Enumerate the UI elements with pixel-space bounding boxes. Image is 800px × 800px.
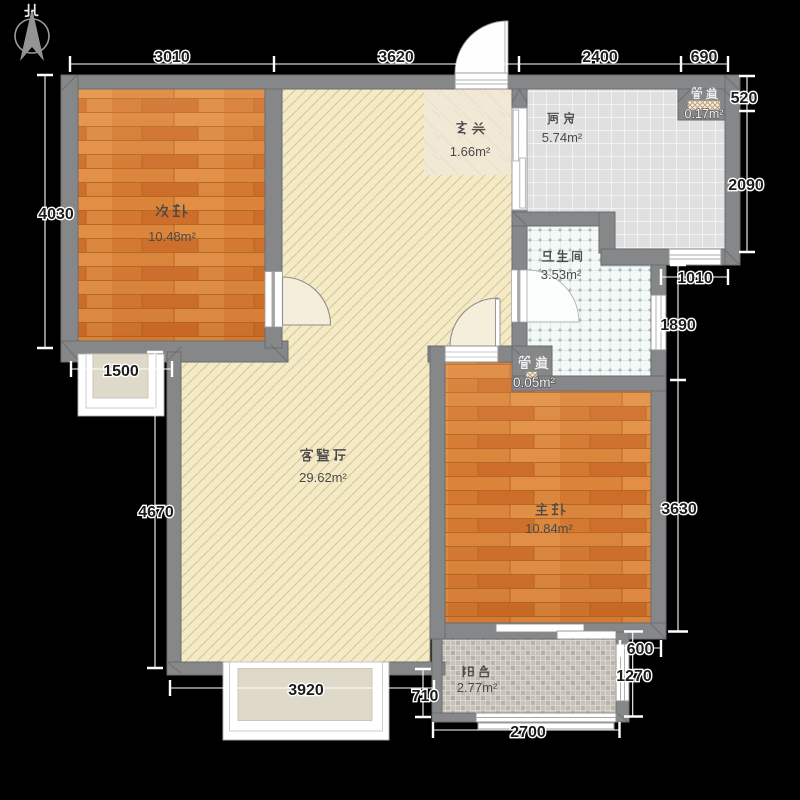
svg-text:10.84m²: 10.84m²	[525, 521, 573, 536]
svg-text:1.66m²: 1.66m²	[450, 144, 491, 159]
svg-text:520: 520	[731, 90, 758, 107]
svg-text:2700: 2700	[510, 724, 546, 741]
svg-text:0.05m²: 0.05m²	[513, 375, 556, 390]
svg-text:0.17m²: 0.17m²	[685, 107, 724, 121]
svg-text:4670: 4670	[138, 504, 174, 521]
svg-text:1890: 1890	[660, 317, 696, 334]
svg-text:3630: 3630	[661, 501, 697, 518]
svg-text:2.77m²: 2.77m²	[457, 680, 498, 695]
svg-text:2090: 2090	[728, 177, 764, 194]
svg-text:3920: 3920	[288, 682, 324, 699]
svg-text:3.53m²: 3.53m²	[541, 267, 582, 282]
svg-text:10.48m²: 10.48m²	[148, 229, 196, 244]
svg-text:1270: 1270	[616, 668, 652, 685]
svg-text:3620: 3620	[378, 49, 414, 66]
svg-text:29.62m²: 29.62m²	[299, 470, 347, 485]
svg-text:1010: 1010	[677, 270, 713, 287]
svg-text:600: 600	[627, 641, 654, 658]
svg-text:3010: 3010	[154, 49, 190, 66]
svg-text:2400: 2400	[582, 49, 618, 66]
svg-text:710: 710	[412, 688, 439, 705]
svg-text:4030: 4030	[38, 206, 74, 223]
svg-text:1500: 1500	[103, 363, 139, 380]
svg-text:690: 690	[691, 49, 718, 66]
svg-text:5.74m²: 5.74m²	[542, 130, 583, 145]
